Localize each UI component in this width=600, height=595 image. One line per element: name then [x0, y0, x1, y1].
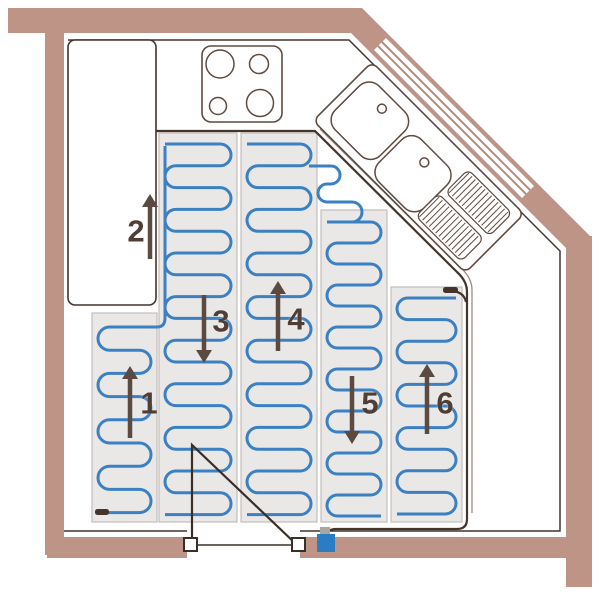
cable-terminal: [443, 287, 458, 293]
counter-area: [68, 40, 156, 305]
door-post: [184, 538, 197, 551]
mat-label-2: 2: [127, 216, 144, 247]
door-post: [292, 538, 305, 551]
burner: [206, 50, 234, 78]
mat-label-5: 5: [361, 388, 378, 419]
burner: [247, 90, 274, 117]
floor-plan: 1 2 3 4 5 6: [0, 0, 600, 595]
cable-terminal: [95, 509, 109, 515]
mat-label-1: 1: [140, 388, 157, 419]
wall-bottom-right: [300, 537, 592, 558]
wall-left: [45, 33, 64, 555]
wall-top: [8, 8, 362, 33]
mat-label-3: 3: [212, 306, 229, 337]
burner: [210, 98, 227, 115]
floor-plan-drawing: [0, 0, 600, 595]
thermostat-connector: [320, 527, 330, 535]
wall-bottom-left: [47, 537, 187, 558]
wall-right: [566, 236, 592, 587]
burner: [250, 55, 269, 74]
thermostat: [317, 534, 335, 552]
mat-label-4: 4: [287, 304, 304, 335]
mat-label-6: 6: [436, 388, 453, 419]
